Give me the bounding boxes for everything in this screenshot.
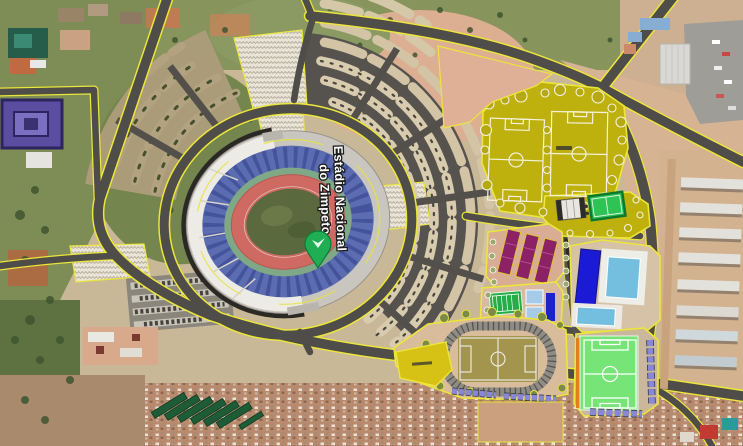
padel-court: [556, 198, 586, 221]
civic-building: [2, 100, 62, 148]
satellite-map[interactable]: Estádio Nacional do Zimpeto: [0, 0, 743, 446]
olympic-pool: [606, 257, 641, 299]
swimming-pool-complex: [563, 240, 660, 332]
place-label-line2: do Zimpeto: [317, 164, 333, 235]
training-field-green: [574, 328, 658, 416]
map-canvas[interactable]: Estádio Nacional do Zimpeto: [0, 0, 743, 446]
tennis-courts: [486, 224, 564, 288]
small-pool: [577, 307, 616, 326]
